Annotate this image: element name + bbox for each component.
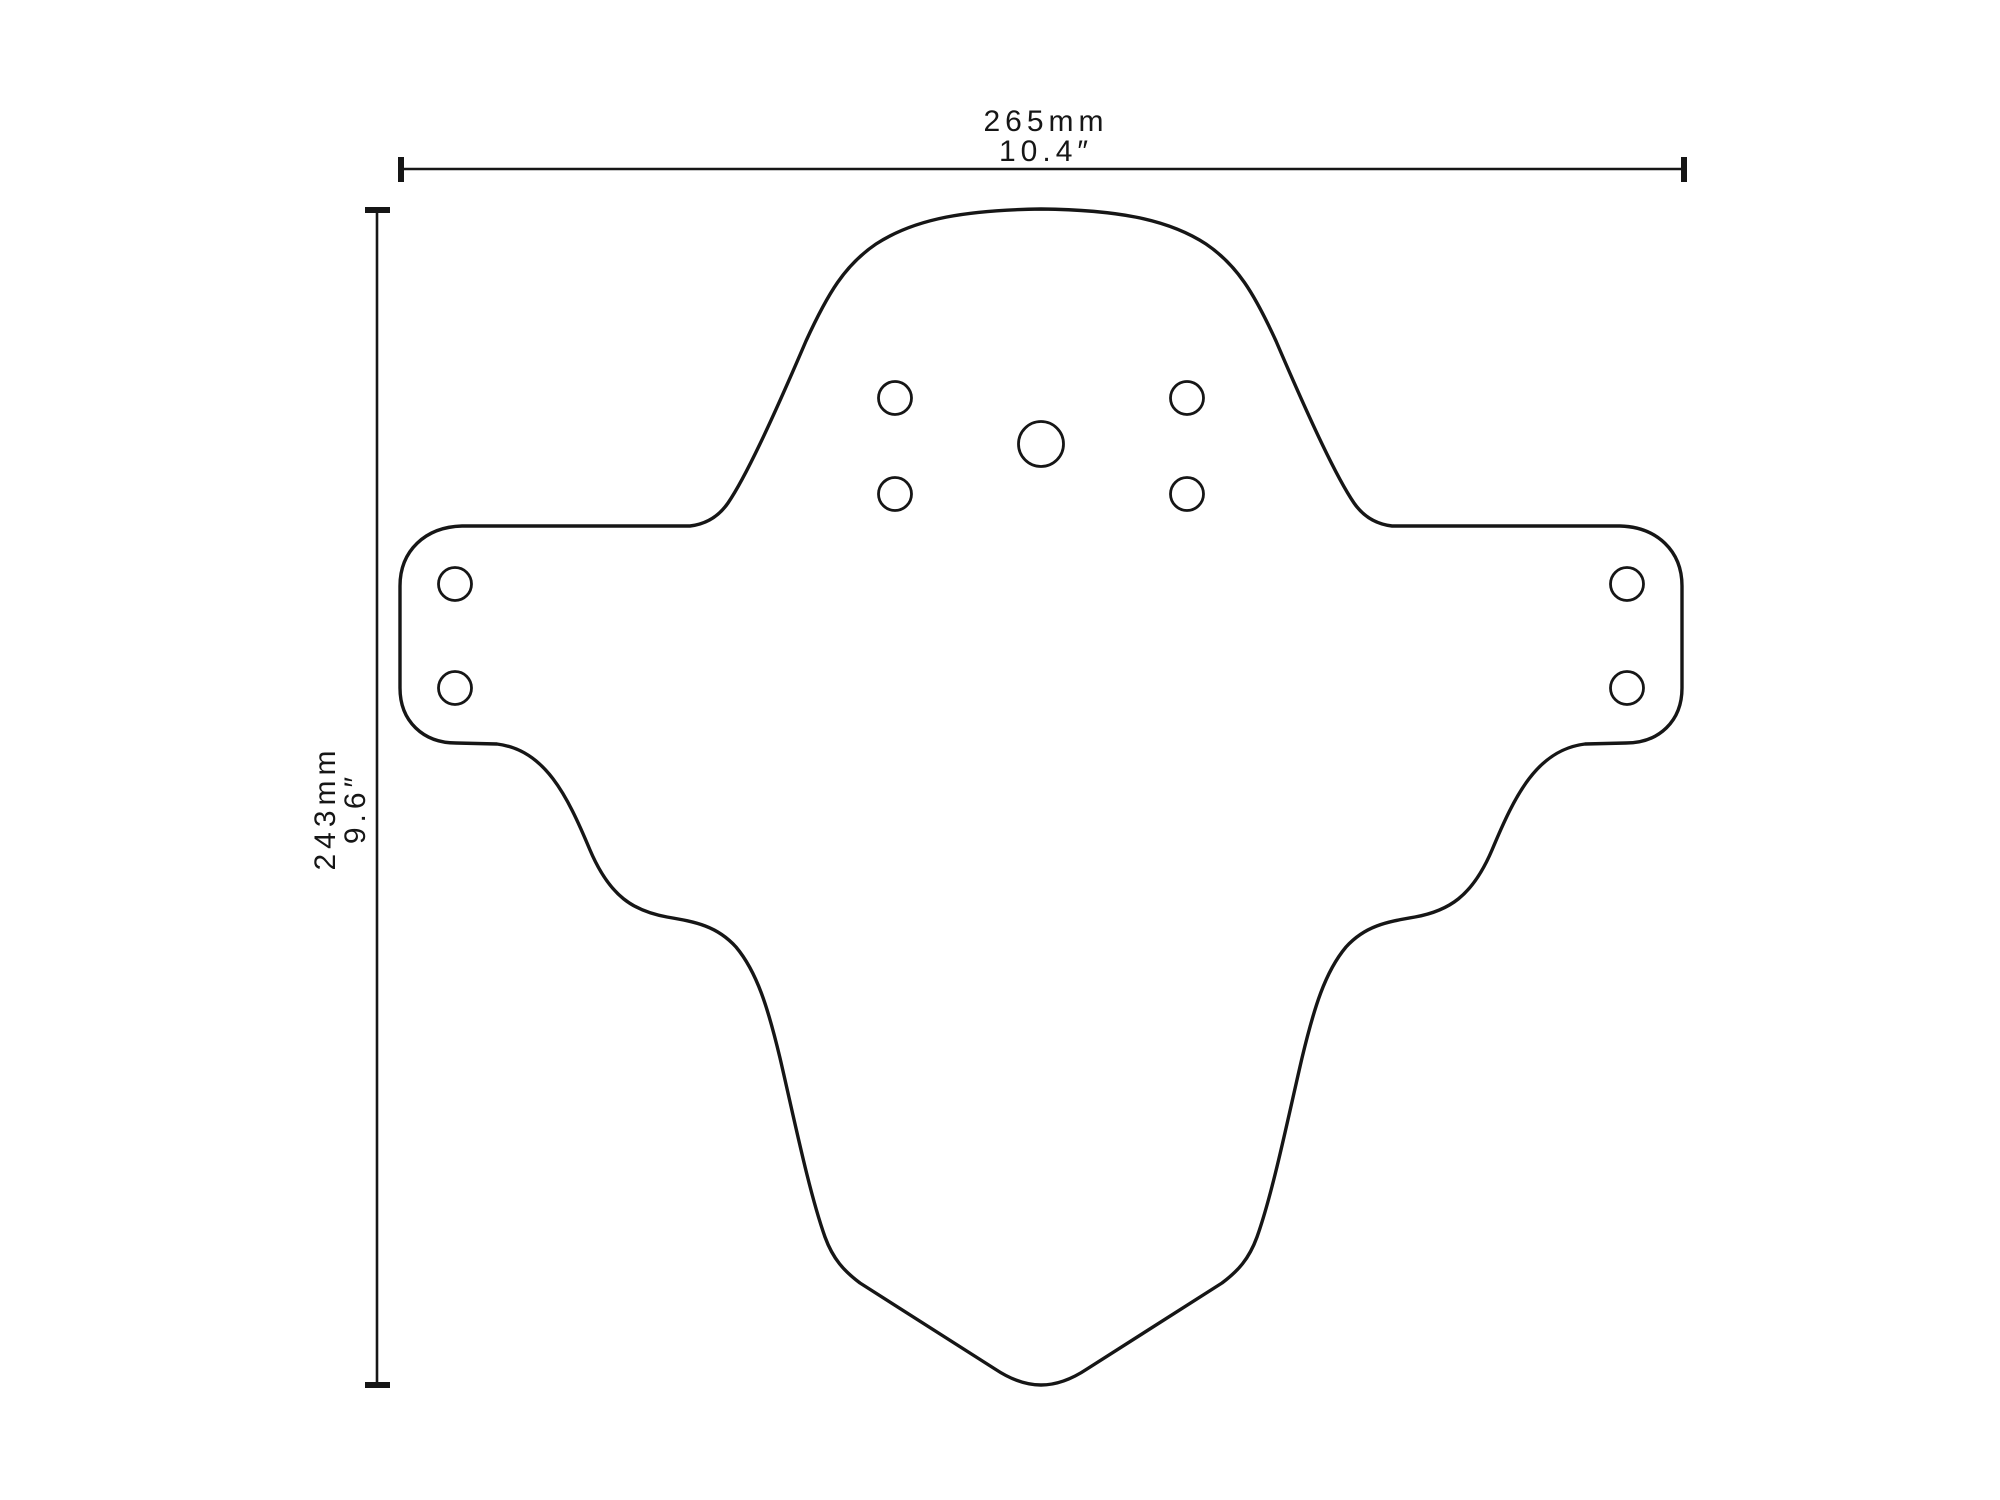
wing-hole-right-lower — [1611, 672, 1644, 705]
width-dimension-label: 265mm 10.4″ — [983, 107, 1108, 167]
width-dimension-metric: 265mm — [983, 107, 1108, 137]
mount-hole-bottom-right — [1171, 478, 1204, 511]
height-dimension-label: 243mm 9.6″ — [311, 745, 371, 870]
mudguard-diagram-svg — [0, 0, 2000, 1500]
mudguard-outline — [400, 209, 1682, 1385]
width-dimension-imperial: 10.4″ — [983, 137, 1108, 167]
wing-hole-left-upper — [439, 568, 472, 601]
height-dimension-metric: 243mm — [311, 745, 341, 870]
mount-hole-top-right — [1171, 382, 1204, 415]
mount-hole-bottom-left — [879, 478, 912, 511]
center-mount-hole — [1019, 422, 1064, 467]
wing-hole-left-lower — [439, 672, 472, 705]
mount-hole-top-left — [879, 382, 912, 415]
height-dimension-imperial: 9.6″ — [341, 745, 371, 870]
wing-hole-right-upper — [1611, 568, 1644, 601]
